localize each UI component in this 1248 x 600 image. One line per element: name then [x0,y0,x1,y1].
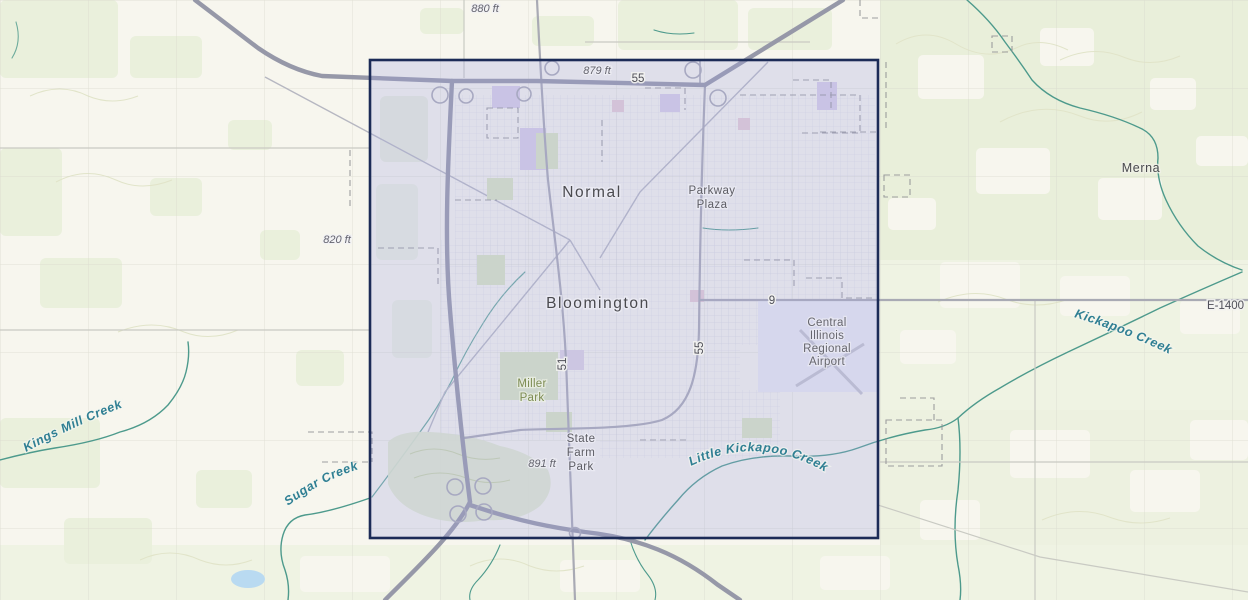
label-route51: 51 [557,358,569,371]
label-elev-891: 891 ft [528,458,556,470]
label-elev-820: 820 ft [323,234,351,246]
label-airport-1: Central [807,317,846,329]
map-svg: Normal Bloomington Merna Parkway Plaza C… [0,0,1248,600]
label-airport-2: Illinois [810,330,844,342]
label-miller-park-1: Miller [517,378,546,390]
label-state-farm-park-1: State [567,433,596,445]
label-airport-3: Regional [803,343,851,355]
label-parkway-plaza-1: Parkway [689,185,736,197]
label-state-farm-park-2: Farm [567,447,595,459]
label-route9: 9 [769,295,775,307]
label-route55: 55 [694,342,706,355]
label-elev-879: 879 ft [583,65,611,77]
label-parkway-plaza-2: Plaza [697,199,728,211]
label-e1400: E-1400 [1207,300,1244,312]
label-bloomington: Bloomington [546,295,650,312]
pond [231,570,265,588]
label-merna: Merna [1122,161,1160,175]
topo-map-canvas[interactable]: Normal Bloomington Merna Parkway Plaza C… [0,0,1248,600]
label-state-farm-park-3: Park [568,461,593,473]
label-elev-880: 880 ft [471,3,499,15]
label-miller-park-2: Park [520,392,545,404]
label-normal: Normal [562,184,622,201]
label-airport-4: Airport [809,356,845,368]
label-i55: 55 [632,73,645,85]
